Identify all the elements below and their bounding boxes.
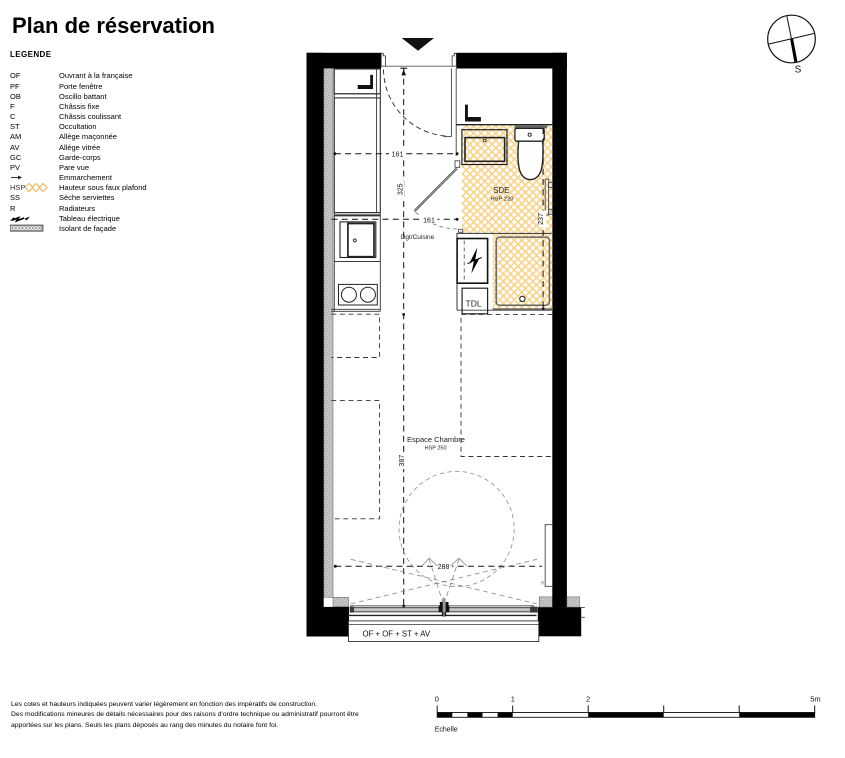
svg-text:325: 325 bbox=[397, 183, 404, 195]
svg-text:288: 288 bbox=[438, 564, 450, 571]
svg-text:161: 161 bbox=[392, 152, 404, 159]
svg-text:2: 2 bbox=[586, 695, 590, 704]
svg-text:Espace Chambre: Espace Chambre bbox=[407, 435, 465, 444]
svg-text:161: 161 bbox=[423, 217, 435, 224]
svg-text:237: 237 bbox=[538, 213, 545, 225]
svg-text:HSP 220: HSP 220 bbox=[490, 196, 513, 202]
svg-text:S: S bbox=[795, 65, 802, 76]
svg-text:TDL: TDL bbox=[466, 298, 482, 308]
svg-text:R: R bbox=[541, 581, 545, 586]
svg-text:1: 1 bbox=[511, 695, 515, 704]
svg-text:5m: 5m bbox=[810, 695, 820, 704]
svg-text:387: 387 bbox=[399, 455, 406, 467]
svg-text:Dgt/Cuisine: Dgt/Cuisine bbox=[401, 234, 435, 241]
svg-text:OF + OF + ST + AV: OF + OF + ST + AV bbox=[363, 629, 431, 638]
svg-text:SDE: SDE bbox=[493, 186, 509, 195]
svg-text:HSP 250: HSP 250 bbox=[425, 446, 447, 452]
svg-text:Echelle: Echelle bbox=[435, 727, 458, 734]
svg-text:0: 0 bbox=[435, 695, 439, 704]
